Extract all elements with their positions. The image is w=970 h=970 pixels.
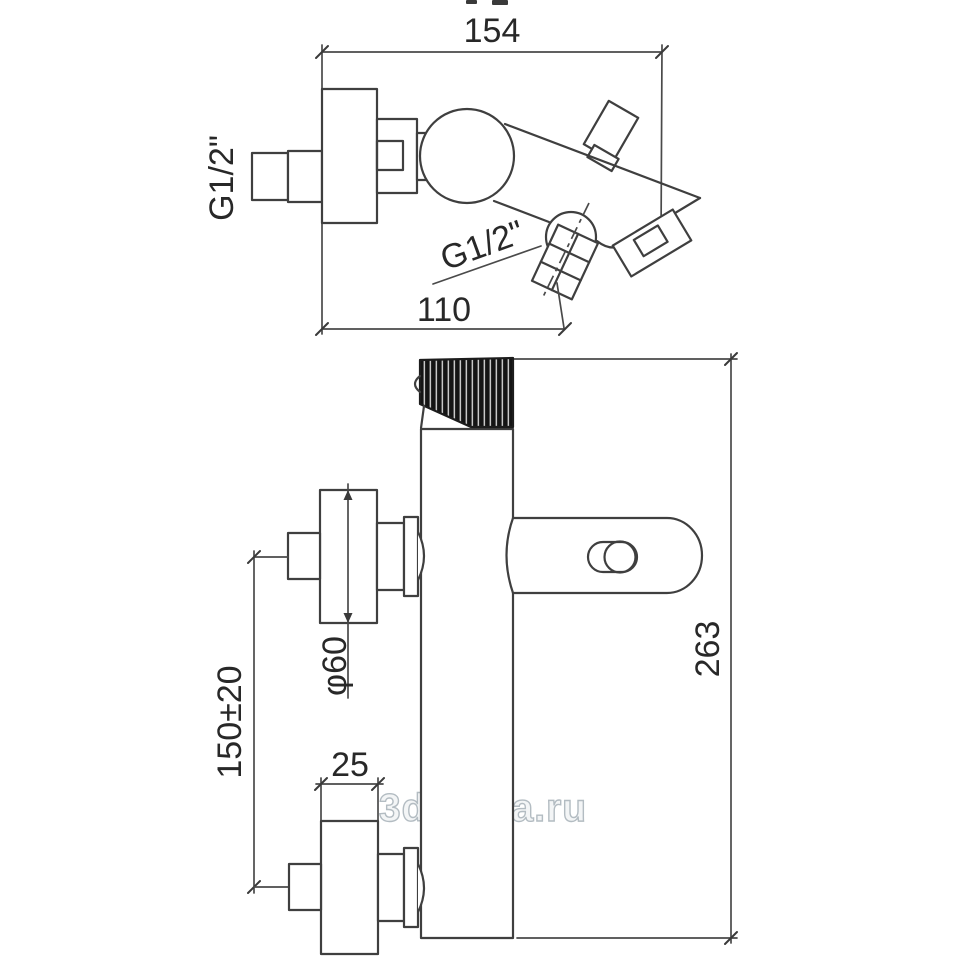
lower-escutcheon bbox=[321, 821, 378, 954]
handle-front bbox=[507, 518, 703, 593]
dia-flange-label: φ60 bbox=[316, 636, 354, 696]
dim-supply-spacing-label: 150±20 bbox=[211, 665, 249, 778]
faucet-dimension-drawing: 3dplitka.ru 154 G1/2" bbox=[0, 0, 970, 970]
wall-flange-top bbox=[322, 89, 377, 223]
mixer-body-front bbox=[421, 429, 513, 938]
cropped-watermark-fragment bbox=[492, 0, 508, 5]
upper-union-nut bbox=[288, 533, 320, 579]
dim-flange-depth-label: 25 bbox=[331, 746, 369, 784]
lower-union-nut bbox=[289, 864, 321, 910]
wall-supply-fitting-top bbox=[252, 151, 322, 202]
dim-spout-label: 110 bbox=[417, 291, 471, 329]
dim-total-height-label: 263 bbox=[689, 621, 727, 678]
mixer-body-top bbox=[420, 109, 514, 203]
technical-drawing-page: 3dplitka.ru 154 G1/2" bbox=[0, 0, 970, 970]
dim-total-width-label: 154 bbox=[464, 12, 521, 50]
cropped-watermark-fragment bbox=[466, 0, 477, 4]
thread-wall-label: G1/2" bbox=[203, 135, 241, 221]
